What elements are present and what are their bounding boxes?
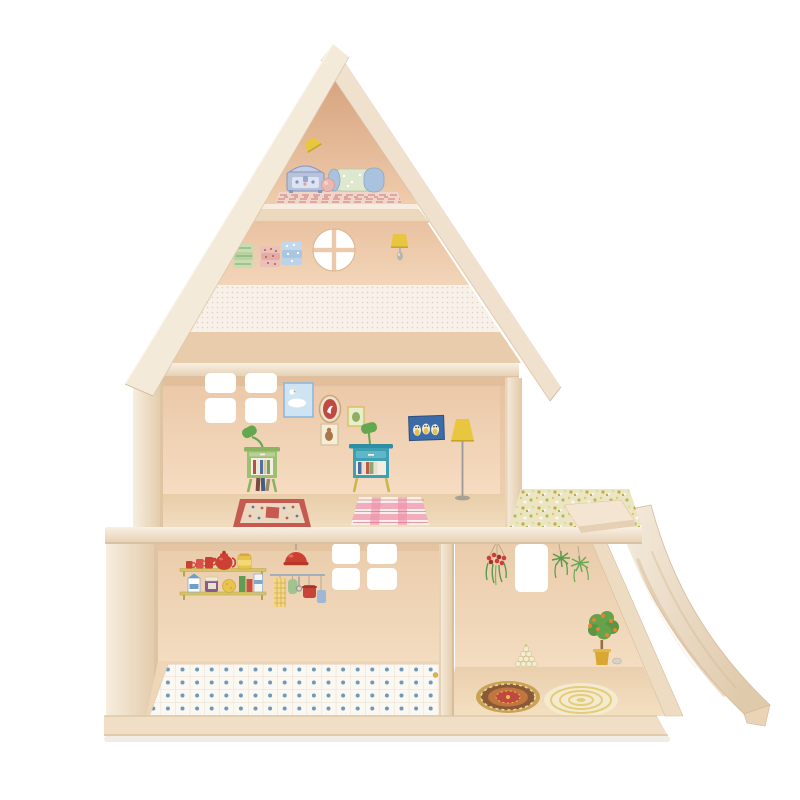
- bedroom: [152, 373, 518, 527]
- living-room-window: [515, 544, 548, 592]
- dog-picture: [321, 424, 338, 445]
- attic-floor-board: [250, 204, 429, 222]
- laundry-stack-blue: [281, 242, 302, 265]
- mandala-rug: [476, 681, 540, 713]
- standing-books: [256, 478, 271, 491]
- oriental-rug: [233, 499, 311, 527]
- main-floor-board: [105, 527, 642, 544]
- dotted-wallpaper-band: [187, 285, 500, 332]
- middle-ceiling-board: [151, 332, 521, 377]
- dollhouse-photo: [0, 0, 800, 800]
- blue-dotted-tile-floor: [149, 664, 452, 717]
- round-window: [313, 229, 355, 271]
- storage-chest-sticker: [287, 166, 324, 193]
- cloud-picture: [284, 383, 313, 417]
- ground-left-wall: [106, 530, 158, 718]
- ground-shadow: [104, 736, 670, 742]
- pebble: [613, 658, 622, 664]
- oval-frame-picture: [320, 396, 341, 423]
- honey-jar-icon: [238, 554, 251, 570]
- dollhouse-illustration: [0, 0, 800, 800]
- checkered-towel-icon: [274, 578, 286, 607]
- divider-latch: [433, 673, 438, 678]
- kitchen: [146, 531, 452, 717]
- round-yellow-rug: [544, 683, 618, 717]
- blue-cloth-icon: [317, 590, 326, 603]
- pink-plaid-rug: [351, 497, 429, 525]
- laundry-stack-red: [260, 246, 280, 267]
- oven-mitt-icon: [288, 579, 298, 594]
- upper-room: [214, 222, 469, 285]
- base-board: [104, 716, 668, 736]
- bed-roll-sticker: [322, 168, 385, 192]
- owl-picture: [409, 415, 445, 440]
- attic-pink-rug: [275, 192, 402, 205]
- red-pot-icon: [302, 585, 317, 598]
- small-green-picture: [348, 407, 364, 426]
- bedroom-left-wall: [133, 378, 163, 530]
